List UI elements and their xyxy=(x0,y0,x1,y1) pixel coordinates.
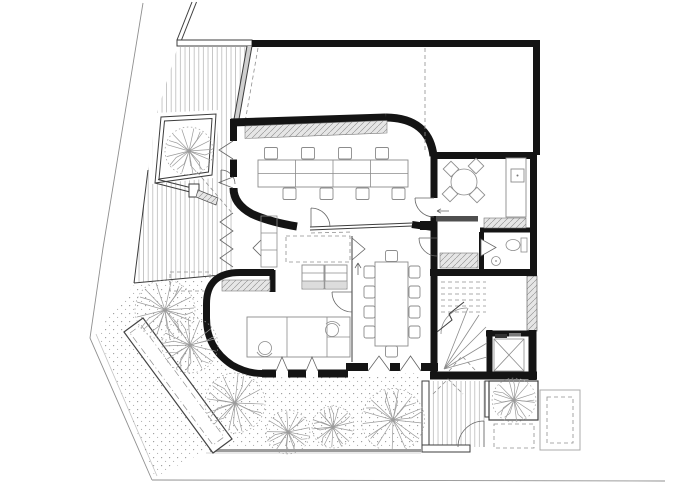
kitchen-counter xyxy=(506,158,526,217)
built-in-cabinet xyxy=(484,218,526,228)
studio-desks xyxy=(247,317,350,357)
office-desk-bank xyxy=(258,160,408,187)
meeting-table xyxy=(375,262,408,346)
side-terrace xyxy=(540,390,580,450)
entry-planter xyxy=(489,381,580,450)
lobby-cabinet xyxy=(440,253,478,268)
floor-plan-drawing xyxy=(0,0,700,495)
floor-plan-canvas xyxy=(0,0,700,495)
wall-office-se-stub xyxy=(412,225,437,229)
entry-path xyxy=(422,379,492,452)
low-counter xyxy=(436,216,478,222)
planter-dashed-square xyxy=(494,424,534,448)
elevator-door-bar-2 xyxy=(509,333,521,337)
wall-above-hatched xyxy=(527,276,537,331)
elevator-door-bar xyxy=(495,334,507,338)
neighbor-wall xyxy=(177,2,252,46)
studio-shelf-hatched xyxy=(222,280,270,291)
